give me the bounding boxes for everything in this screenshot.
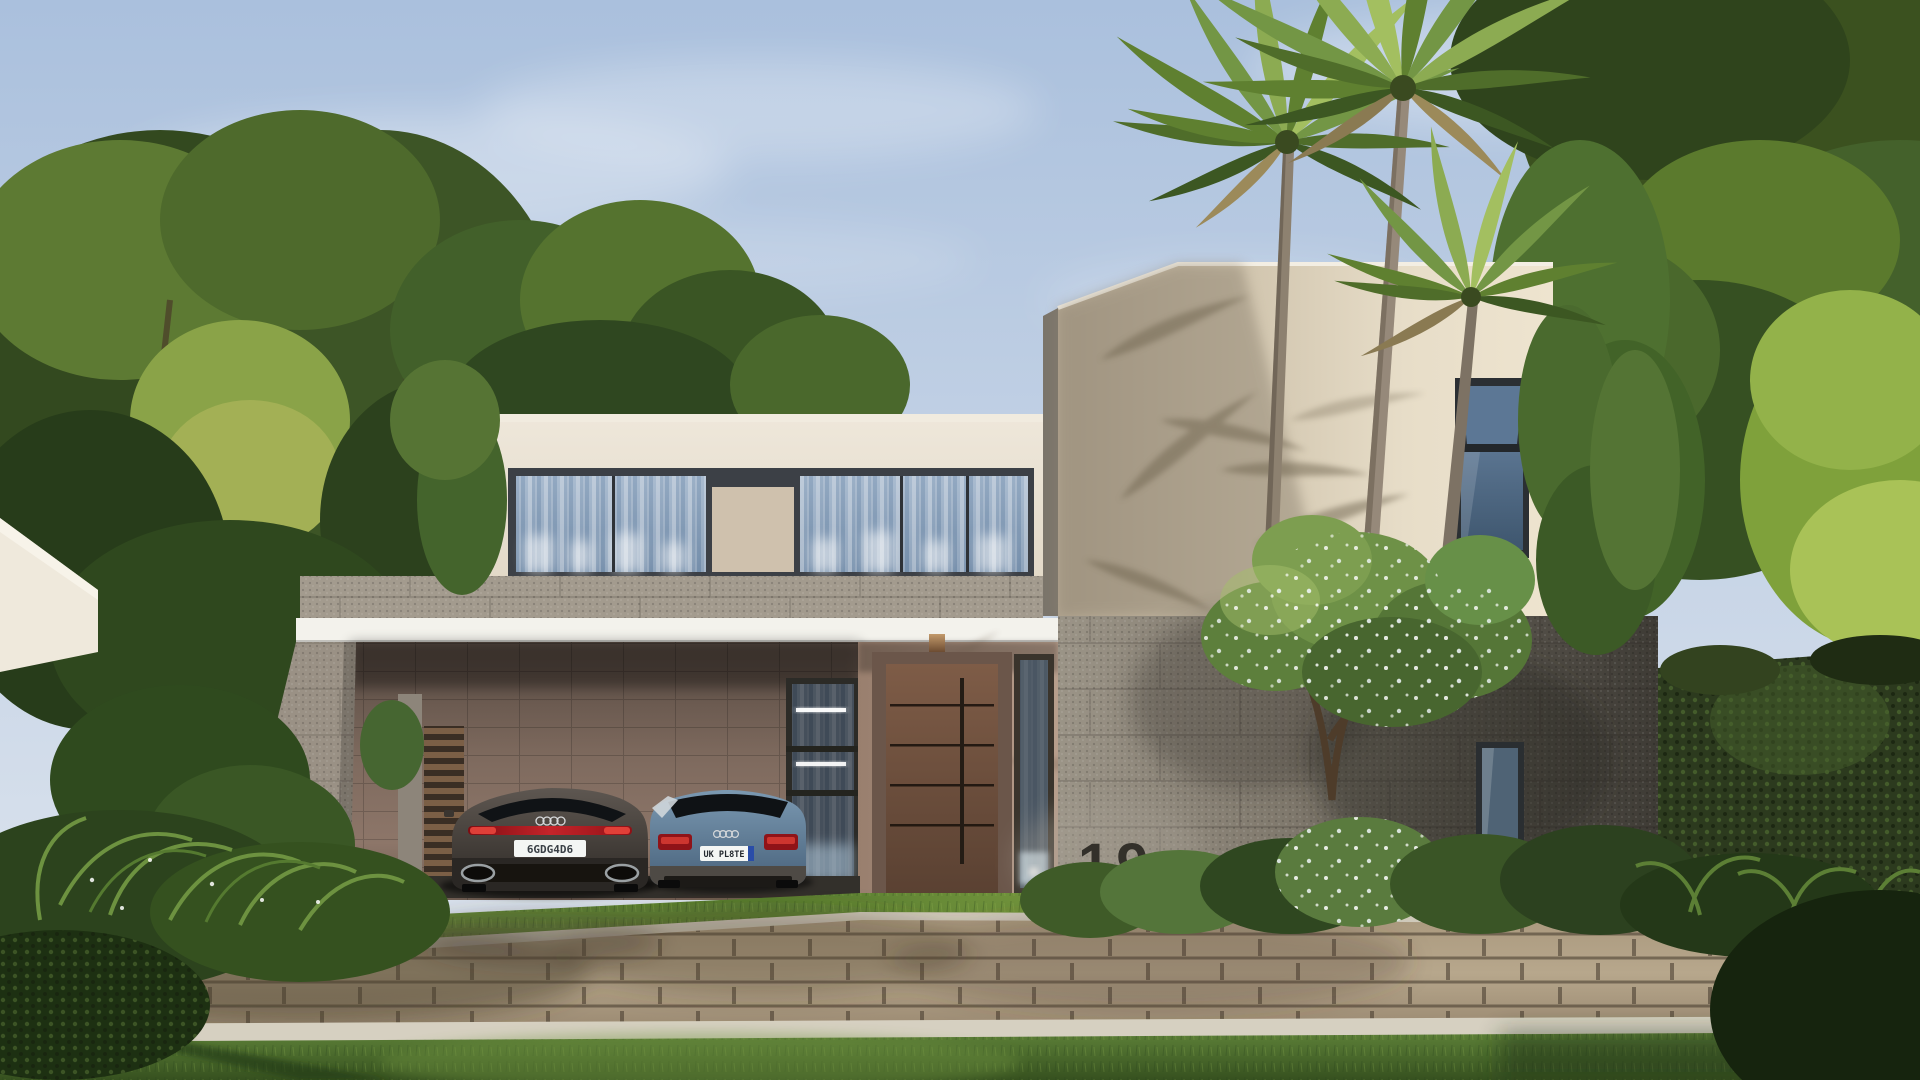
entry-downlight [929, 634, 945, 652]
open-awning-sash [1461, 386, 1523, 444]
audi-suv: UK PL8TE [650, 790, 806, 888]
plate-eu-strip [748, 846, 754, 861]
door-groove [890, 824, 994, 827]
tire [776, 880, 798, 888]
license-plate-text: UK PL8TE [704, 850, 745, 860]
side-mirror [444, 810, 454, 817]
wall-panel-between-windows [712, 487, 794, 572]
door-groove [890, 784, 994, 787]
architectural-render: 19 6GDG4D6 [0, 0, 1920, 1080]
door-handle[interactable] [960, 678, 964, 864]
tire [658, 880, 680, 888]
ribbon-window [508, 468, 1034, 578]
garden-through-opening [360, 700, 424, 790]
license-plate-text: 6GDG4D6 [527, 843, 574, 856]
scene-canvas: 19 6GDG4D6 [0, 0, 1920, 1080]
stone-band [300, 576, 1043, 620]
door-groove [890, 704, 994, 707]
tire [462, 884, 486, 892]
door-groove [890, 744, 994, 747]
front-door[interactable] [886, 664, 998, 902]
tire [614, 884, 638, 892]
